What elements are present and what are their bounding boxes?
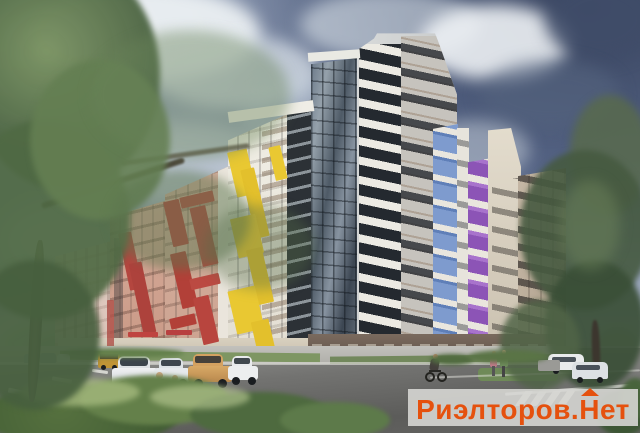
watermark: Риэлторов.Нет xyxy=(408,389,638,426)
tree-canopy xyxy=(500,300,580,390)
mullions xyxy=(311,58,357,370)
red-awning xyxy=(166,330,192,335)
architectural-rendering: Риэлторов.Нет xyxy=(0,0,640,433)
house-roof-icon xyxy=(581,388,599,396)
red-awning xyxy=(128,332,158,337)
car-glass xyxy=(576,365,600,370)
hedge xyxy=(468,350,548,363)
foreground-bush xyxy=(280,402,390,433)
bush-highlight xyxy=(150,385,250,409)
suv-glass xyxy=(195,356,221,363)
tree-canopy-sparse xyxy=(90,30,290,160)
white-car-right xyxy=(572,362,608,385)
car-glass xyxy=(234,358,250,364)
glass-shaft xyxy=(311,58,357,370)
sedan-glass xyxy=(161,360,181,366)
tree-foliage xyxy=(205,205,315,290)
tree-canopy-highlight xyxy=(560,180,620,270)
street-furniture xyxy=(538,360,560,371)
compact-car xyxy=(228,354,258,386)
white-balcony-stack xyxy=(359,44,401,370)
suv-glass xyxy=(120,358,148,366)
watermark-text: Риэлторов.Нет xyxy=(416,395,630,425)
